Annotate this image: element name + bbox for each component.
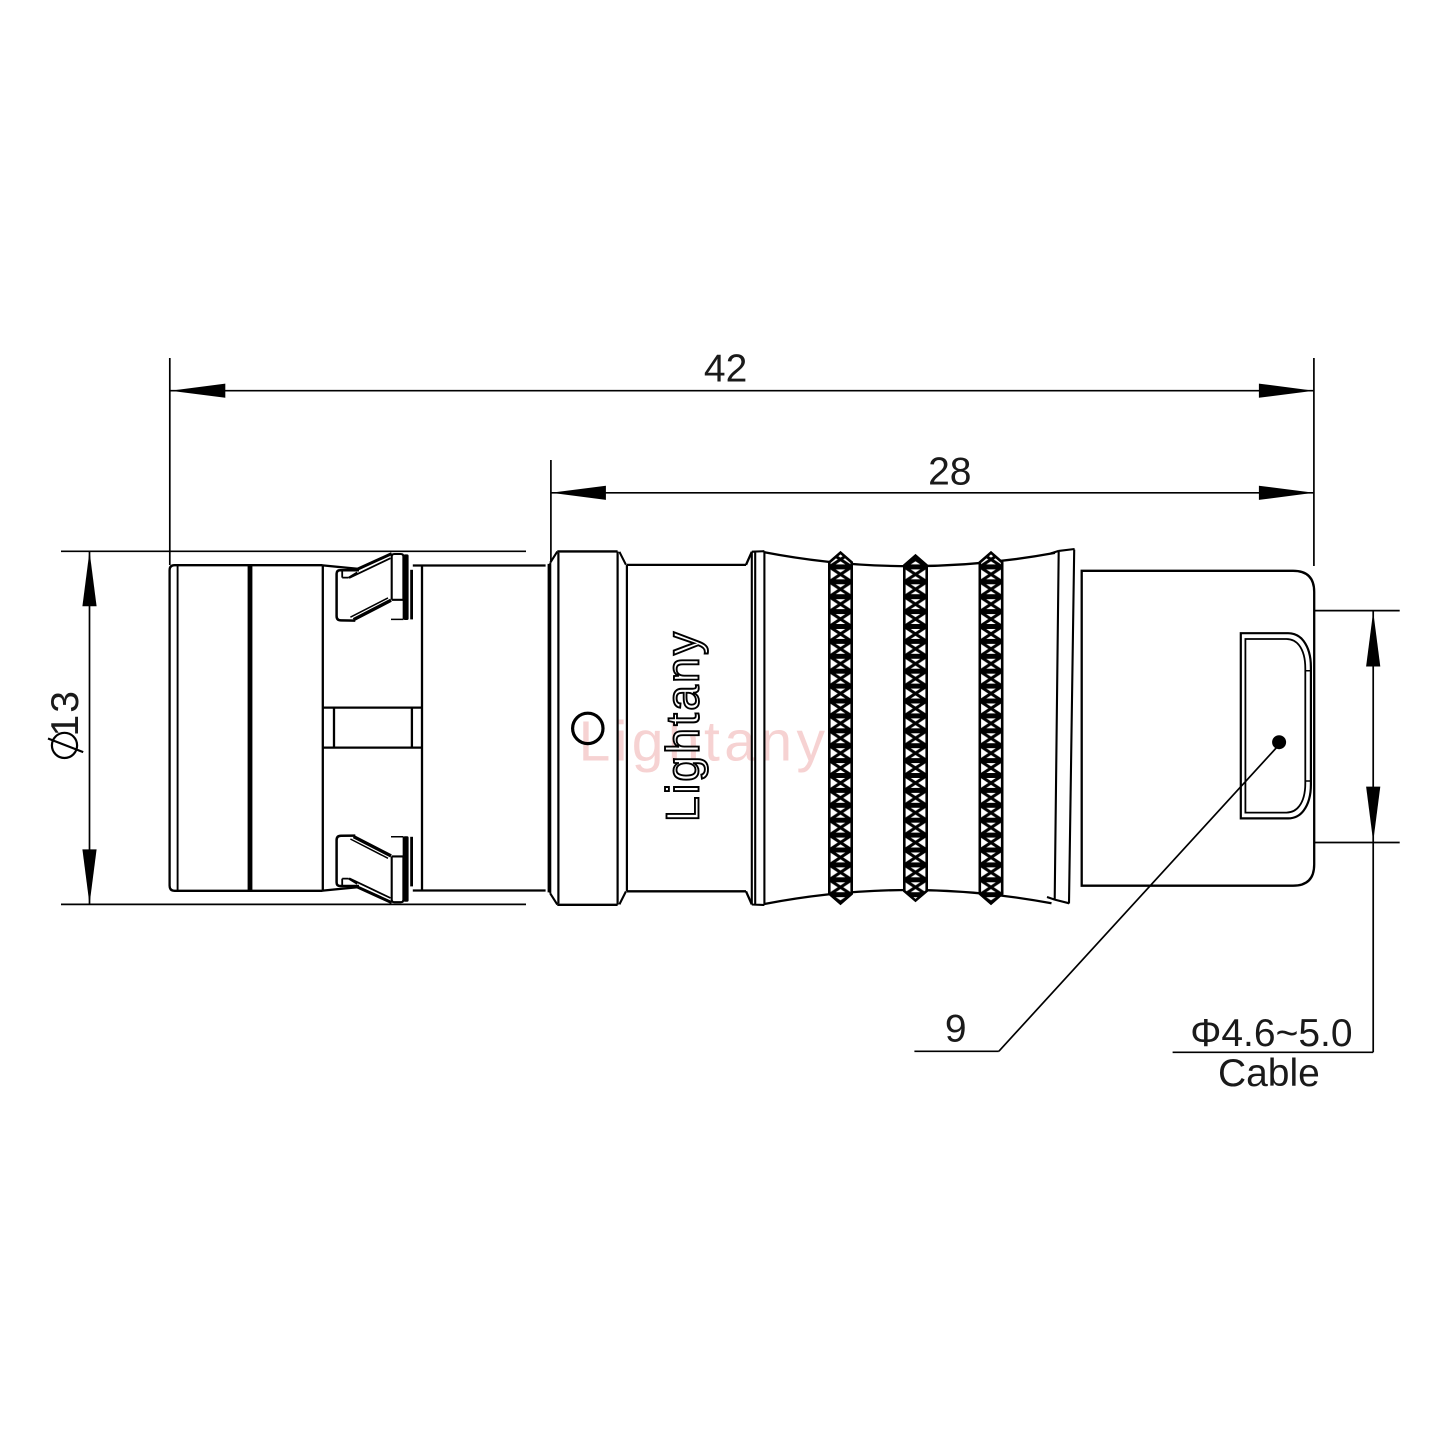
svg-text:9: 9 bbox=[945, 1007, 967, 1050]
svg-text:28: 28 bbox=[928, 450, 971, 493]
svg-text:Φ4.6~5.0: Φ4.6~5.0 bbox=[1190, 1012, 1352, 1055]
svg-text:13: 13 bbox=[44, 689, 87, 736]
svg-text:Cable: Cable bbox=[1218, 1052, 1320, 1095]
svg-text:Lightany: Lightany bbox=[657, 630, 709, 822]
svg-text:42: 42 bbox=[704, 347, 747, 390]
